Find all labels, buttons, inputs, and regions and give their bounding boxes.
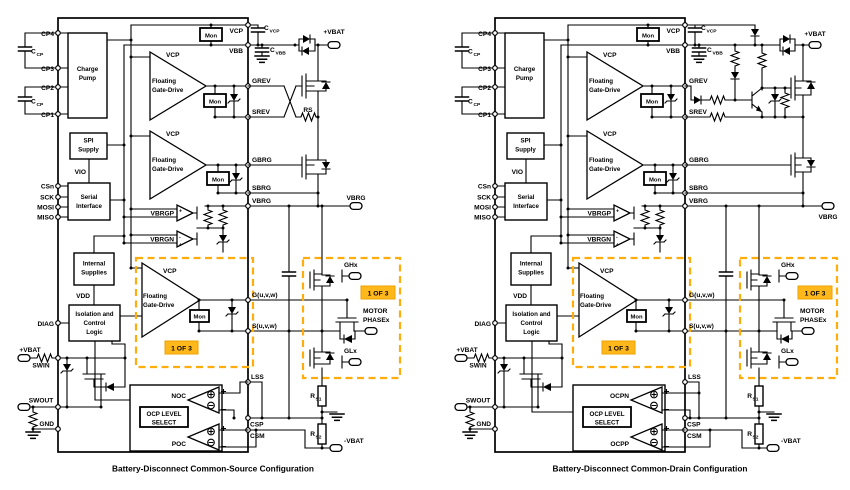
ocp-level-label: OCP LEVEL <box>147 411 182 418</box>
ocpp-label: OCPP <box>610 441 629 448</box>
ocp-select-label: SELECT <box>595 420 620 427</box>
resistor-icon <box>781 90 789 110</box>
vbat-label: +VBAT <box>323 29 344 36</box>
right-panel <box>455 18 837 452</box>
diode-icons <box>302 35 330 169</box>
ocpn-label: OCPN <box>610 393 629 400</box>
left-panel <box>18 18 400 452</box>
left-caption: Battery-Disconnect Common-Source Configu… <box>112 464 314 474</box>
wires <box>532 25 822 447</box>
resistor-icon <box>731 48 739 68</box>
schematic-page: Mon Mon Mon Mon 1 OF 3 1 OF 3 <box>0 0 850 490</box>
vbat-terminal <box>328 42 340 49</box>
resistor-icon <box>758 50 766 70</box>
right-caption: Battery-Disconnect Common-Drain Configur… <box>553 464 748 474</box>
rs-sense-resistor-icon <box>298 113 318 121</box>
vbrg-terminal <box>822 203 834 210</box>
resistor-icon <box>707 113 727 121</box>
left-panel-extras: RS +VBAT VBRG NOC POC OCP LEVEL SELECT B… <box>95 29 366 474</box>
vbat-terminal <box>809 42 821 49</box>
noc-label: NOC <box>171 393 186 400</box>
vbrg-terminal <box>350 203 362 210</box>
vbrg-label: VBRG <box>346 195 365 202</box>
vbrg-label: VBRG <box>818 214 837 221</box>
rs-label: RS <box>303 107 313 114</box>
ocp-level-label: OCP LEVEL <box>590 411 625 418</box>
vbat-label: +VBAT <box>804 31 825 38</box>
battery-disconnect-schematics: Mon Mon Mon Mon 1 OF 3 1 OF 3 <box>0 0 850 490</box>
poc-label: POC <box>172 441 187 448</box>
ocp-select-label: SELECT <box>152 420 177 427</box>
resistor-icon <box>707 96 727 104</box>
junctions <box>233 44 320 432</box>
